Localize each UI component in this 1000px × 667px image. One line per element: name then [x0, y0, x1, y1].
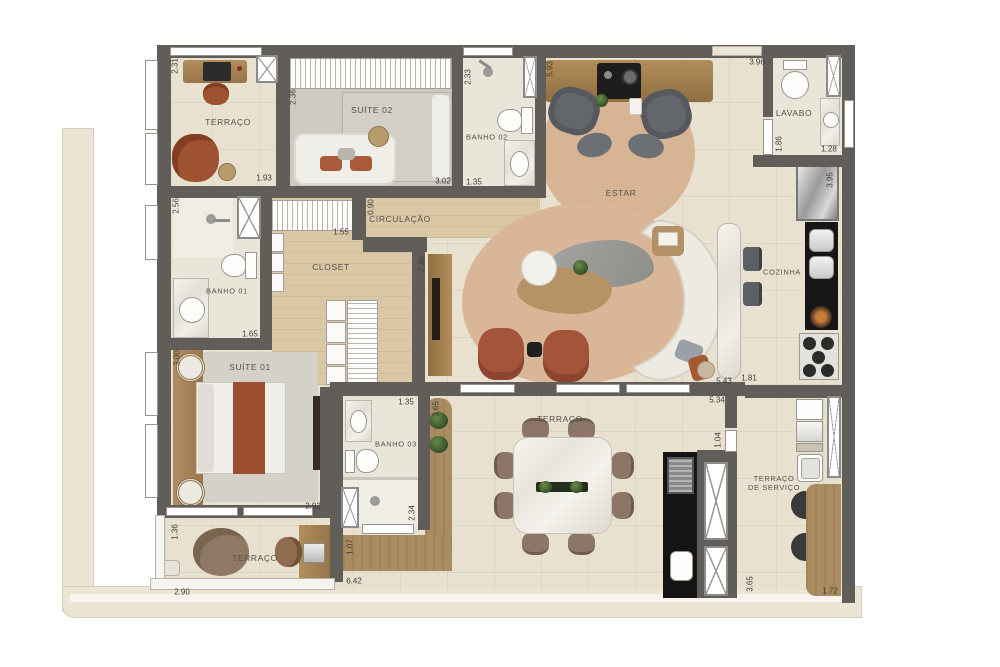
window-top-banho02	[463, 47, 513, 56]
shaft-lavabo	[826, 55, 841, 97]
dining-chair-bottom-2	[568, 532, 595, 555]
room-label-banho01: BANHO 01	[206, 287, 248, 296]
shaft-banho01	[237, 196, 261, 239]
dim-5-93: 5.93	[546, 61, 555, 77]
terraco-top-armchair	[172, 134, 219, 182]
dining-chair-right-1	[611, 452, 634, 479]
estar-tray-white	[629, 98, 642, 115]
window-left-terraco-2	[145, 133, 158, 185]
banho03-basin	[350, 410, 367, 433]
wall-closet-right	[412, 252, 425, 385]
room-label-terraco-servico-line2: DE SERVIÇO	[748, 483, 800, 492]
terraco-bottom-lounge-chair	[193, 528, 249, 576]
estar-sofa-book	[658, 232, 678, 246]
window-suite01-bottom-2	[243, 507, 313, 516]
estar-audio-knob	[604, 71, 612, 79]
rail-terraco-bottom-left	[155, 515, 165, 583]
entry-door-recess	[712, 46, 762, 56]
dining-chair-bottom-1	[522, 532, 549, 555]
dim-2-40: 2.40	[418, 256, 427, 272]
window-suite01-bottom-1	[166, 507, 238, 516]
dim-6-42: 6.42	[346, 577, 362, 586]
window-left-suite01-2	[145, 424, 158, 498]
dining-centerpiece-2	[570, 481, 583, 493]
bbq-grill	[667, 457, 694, 494]
banho03-glass-partition	[343, 477, 418, 480]
dim-2-90: 2.90	[174, 588, 190, 597]
wall-lavabo-bottom	[753, 155, 842, 167]
service-washer-knobs	[796, 443, 823, 452]
dim-3-02: 3.02	[435, 177, 451, 186]
stove-burner-5	[821, 364, 834, 377]
closet-center-shelves-1	[326, 300, 346, 321]
shaft-service	[827, 396, 841, 478]
banho02-toilet-bowl	[497, 109, 522, 132]
wall-service-west-stub	[725, 396, 737, 428]
closet-center-hanging	[347, 300, 378, 385]
room-label-banho03: BANHO 03	[375, 440, 417, 449]
dim-1-35-banho03: 1.35	[398, 398, 414, 407]
dim-1-55: 1.55	[333, 228, 349, 237]
terraco-top-red-dot	[237, 66, 242, 71]
deck-bench-horizontal	[343, 535, 452, 571]
dim-3-96: 3.96	[749, 58, 765, 67]
estar-side-table-black	[527, 342, 542, 357]
window-top-terraco	[170, 47, 262, 56]
wall-circulacao-south	[363, 237, 427, 252]
room-label-suite02: SUÍTE 02	[351, 105, 393, 115]
terraco-bottom-chair	[275, 537, 302, 567]
service-counter	[806, 484, 841, 596]
closet-wardrobe-top	[266, 200, 353, 231]
window-left-suite01-1	[145, 352, 158, 416]
kitchen-sink-1	[809, 229, 834, 252]
dim-1-72: 1.72	[822, 587, 838, 596]
service-washer-2	[796, 421, 823, 442]
stove-burner-4	[803, 364, 816, 377]
room-label-cozinha: COZINHA	[763, 268, 801, 277]
shaft-dining-2	[704, 546, 728, 596]
door-service	[725, 430, 737, 452]
wall-suite02-banho02	[452, 55, 463, 188]
deck-plant-2	[429, 436, 448, 453]
window-left-terraco	[145, 60, 158, 130]
deck-band-left	[62, 128, 94, 612]
dim-2-92: 2.92	[305, 502, 321, 511]
dim-5-34: 5.34	[709, 396, 725, 405]
window-banho03-bottom	[362, 524, 414, 534]
kitchen-stool-2	[743, 282, 762, 306]
suite02-cushion-gray	[338, 148, 355, 160]
wall-left	[157, 45, 171, 518]
shaft-banho02	[523, 56, 537, 98]
kitchen-sink-2	[809, 256, 834, 279]
banho03-shower-head	[370, 496, 380, 506]
stove-burner-1	[803, 337, 816, 350]
dim-3-95: 3.95	[826, 172, 835, 188]
room-label-banho02: BANHO 02	[466, 133, 508, 142]
room-label-terraco-servico: TERRAÇO DE SERVIÇO	[748, 474, 800, 492]
floor-banho01-shower	[173, 198, 233, 258]
estar-armchair-rust-right	[543, 330, 589, 382]
room-label-terraco-servico-line1: TERRAÇO	[748, 474, 800, 483]
dim-3-00: 3.00	[173, 350, 182, 366]
room-label-terraco-dining: TERRAÇO	[537, 414, 583, 424]
wall-circulacao-stub	[352, 186, 366, 240]
dim-2-33: 2.33	[464, 69, 473, 85]
dim-2-56: 2.56	[172, 198, 181, 214]
dim-1-81: 1.81	[741, 374, 757, 383]
door-lavabo	[763, 119, 773, 155]
wall-terraco-suite02	[276, 55, 290, 188]
kitchen-dish	[810, 306, 832, 328]
suite01-tv	[313, 396, 320, 470]
service-tank-basin	[801, 458, 820, 479]
banho02-basin	[510, 151, 529, 177]
room-label-terraco-bottom: TERRAÇO	[232, 553, 278, 563]
wall-banho01-bottom	[157, 338, 272, 350]
wall-banho03-right	[418, 396, 430, 530]
wall-banho01-closet	[260, 198, 272, 338]
banho01-toilet-bowl	[221, 254, 246, 277]
room-label-lavabo: LAVABO	[776, 108, 812, 118]
dim-2-31: 2.31	[171, 58, 180, 74]
dim-3-65-deck: 3.65	[432, 401, 441, 417]
suite01-rug-round-bottom	[176, 478, 205, 507]
banho01-basin	[179, 297, 205, 323]
estar-moss-bowl	[573, 260, 588, 275]
stove-burner-2	[821, 337, 834, 350]
lavabo-basin	[823, 112, 839, 128]
dim-1-36: 1.36	[171, 524, 180, 540]
room-label-closet: CLOSET	[312, 262, 350, 272]
room-label-terraco-top: TERRAÇO	[205, 117, 251, 127]
terraco-top-desk-chair	[203, 83, 229, 105]
kitchen-stool-1	[743, 247, 762, 271]
dining-chair-right-2	[611, 492, 634, 519]
dim-1-35-banho02: 1.35	[466, 178, 482, 187]
lavabo-toilet-tank	[783, 60, 807, 70]
suite02-round-table	[368, 126, 389, 147]
estar-audio-record	[622, 69, 638, 85]
window-right-lavabo	[844, 100, 854, 148]
terraco-top-printer	[203, 62, 231, 81]
banho02-toilet-tank	[521, 107, 533, 134]
dim-2-36: 2.36	[289, 89, 298, 105]
dim-1-86: 1.86	[775, 136, 784, 152]
dim-3-65-service: 3.65	[746, 576, 755, 592]
banho03-toilet-tank	[345, 450, 355, 473]
service-washer-1	[796, 399, 823, 420]
window-left-banho01	[145, 205, 158, 260]
window-estar-dining-3	[626, 384, 690, 393]
shaft-banho03	[341, 487, 359, 528]
lavabo-toilet-bowl	[781, 71, 809, 99]
room-label-circulacao: CIRCULAÇÃO	[369, 214, 431, 224]
estar-tv	[432, 278, 440, 340]
estar-plant	[595, 94, 608, 107]
dining-centerpiece-1	[539, 481, 552, 493]
dim-1-04: 1.04	[714, 432, 723, 448]
room-label-estar: ESTAR	[606, 188, 637, 198]
bbq-sink	[670, 551, 693, 581]
banho03-toilet-bowl	[356, 449, 379, 473]
suite01-bed-runner	[233, 382, 265, 474]
shaft-top-left	[256, 55, 278, 83]
closet-center-shelves-3	[326, 344, 346, 365]
estar-round-side-table	[697, 361, 715, 379]
estar-tray-round	[521, 250, 557, 286]
floor-plan: TERRAÇO SUÍTE 02 BANHO 02 ESTAR LAVABO C…	[0, 0, 1000, 667]
dim-1-07: 1.07	[346, 539, 355, 555]
suite02-bed-pillows	[432, 95, 449, 179]
dim-5-43: 5.43	[716, 377, 732, 386]
suite01-bed-pillows	[198, 384, 214, 472]
banho01-toilet-tank	[245, 252, 257, 279]
estar-armchair-rust-left	[478, 328, 524, 380]
banho01-shower-arm	[214, 219, 230, 222]
room-label-suite01: SUÍTE 01	[229, 362, 271, 372]
terraco-top-side-table	[218, 163, 236, 181]
window-estar-dining-2	[556, 384, 620, 393]
window-estar-dining-1	[460, 384, 515, 393]
kitchen-island	[717, 223, 741, 379]
dim-1-65: 1.65	[242, 330, 258, 339]
dim-2-34: 2.34	[408, 505, 417, 521]
stove-burner-3	[812, 351, 825, 364]
dim-0-90: 0.90	[367, 199, 376, 215]
suite02-wardrobe	[289, 58, 452, 89]
dim-1-93: 1.93	[256, 174, 272, 183]
terraco-bottom-laptop	[303, 543, 325, 563]
shaft-dining-1	[704, 462, 728, 540]
closet-center-shelves-2	[326, 322, 346, 343]
dim-1-28: 1.28	[821, 145, 837, 154]
